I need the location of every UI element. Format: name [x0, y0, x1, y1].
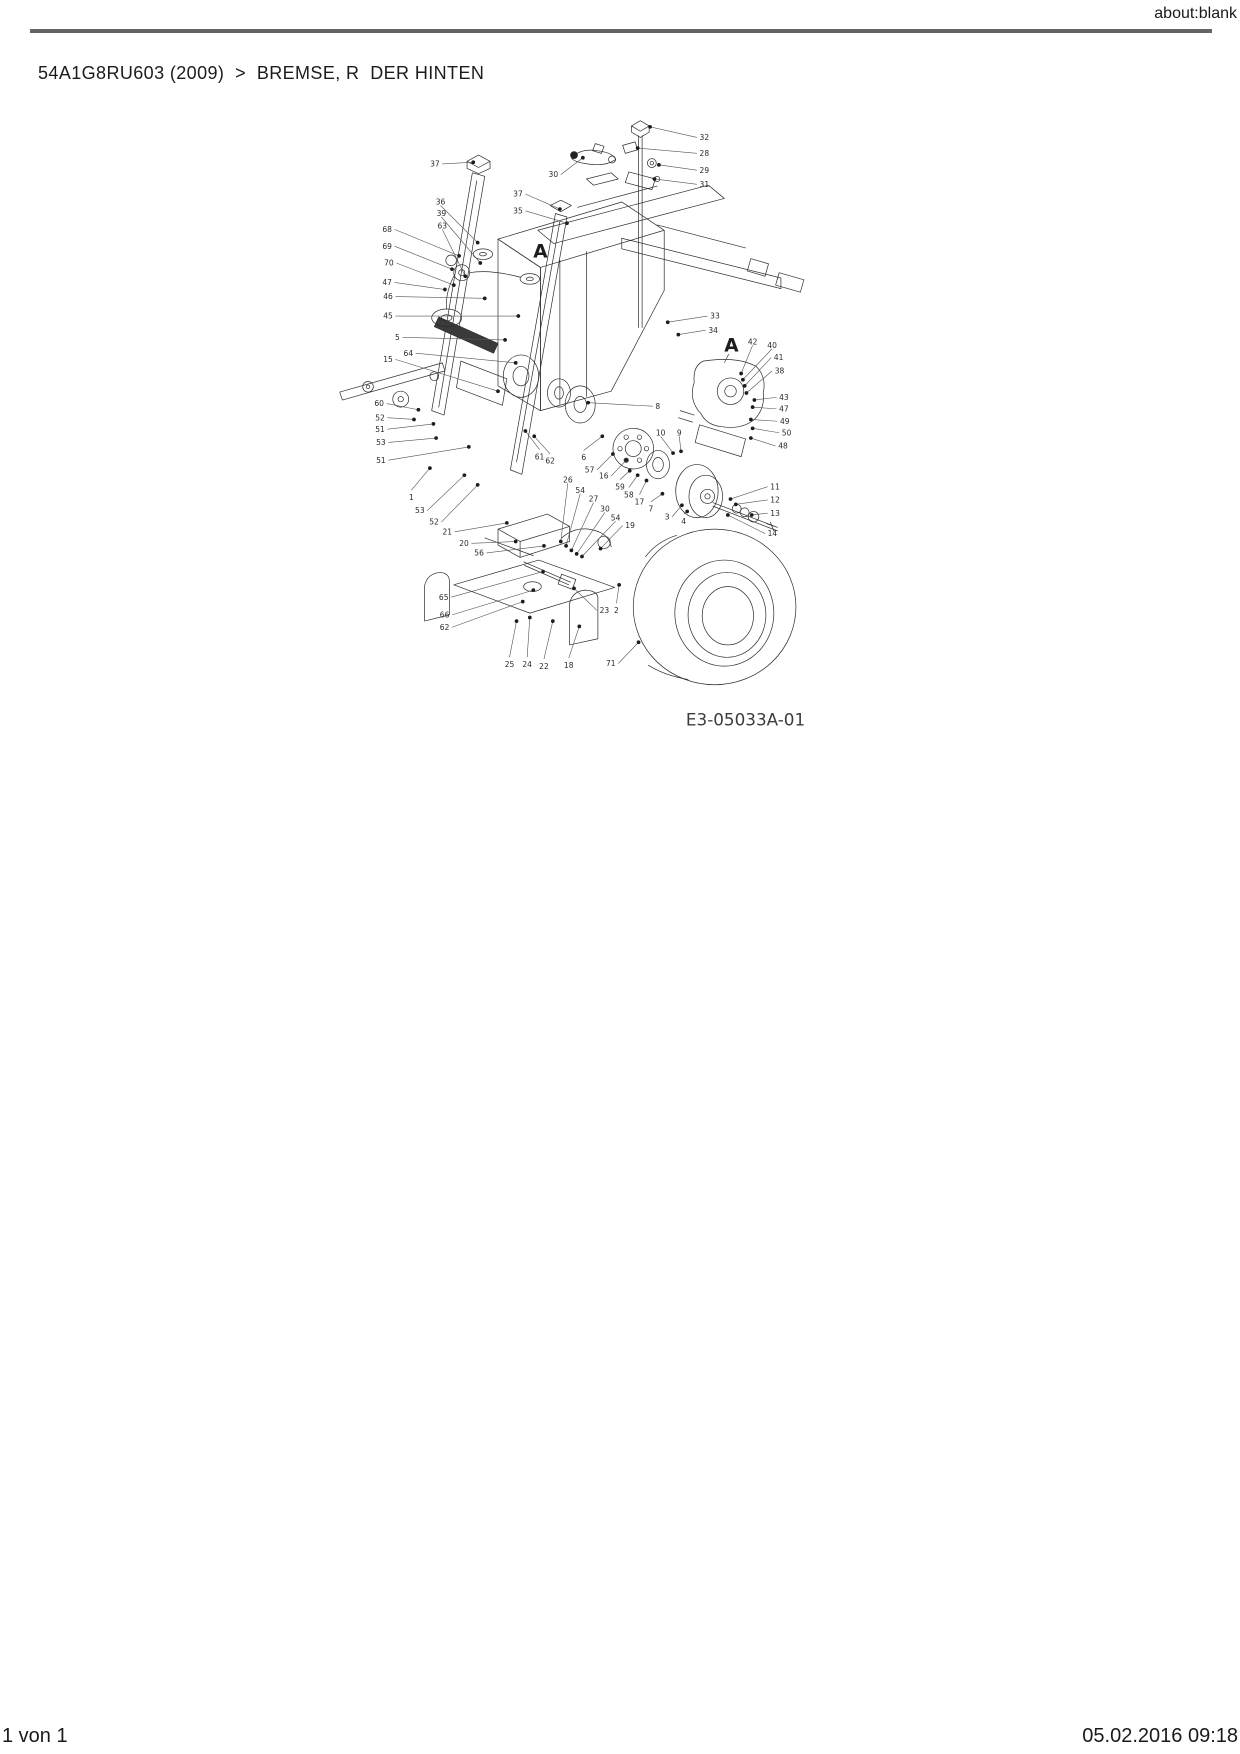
detail-marker-letter: A — [533, 242, 548, 263]
leader-dot — [452, 283, 456, 287]
part-number-label: 69 — [382, 242, 392, 251]
leader-dot — [636, 146, 640, 150]
leader-dot — [645, 479, 649, 483]
part-number-label: 12 — [770, 496, 780, 505]
header-rule — [30, 29, 1212, 33]
part-number-label: 13 — [770, 509, 780, 518]
leader-line — [566, 494, 580, 546]
part-number-label: 11 — [770, 482, 780, 491]
diagram-code: E3-05033A-01 — [686, 709, 805, 729]
part-number-label: 43 — [779, 393, 789, 402]
leader-dot — [496, 389, 500, 393]
leader-line — [395, 297, 484, 299]
leader-dot — [680, 503, 684, 507]
part-number-label: 33 — [710, 312, 720, 321]
leader-line — [651, 494, 662, 502]
leader-line — [741, 345, 752, 373]
part-number-label: 36 — [436, 198, 446, 207]
parts-diagram-container: E3-05033A-01 373639636869704746455641560… — [330, 95, 870, 820]
part-number-label: 29 — [700, 166, 710, 175]
leader-line — [387, 418, 414, 420]
leader-dot — [726, 513, 730, 517]
part-number-label: 62 — [545, 457, 555, 466]
leader-dot — [745, 391, 749, 395]
leader-dot — [514, 540, 518, 544]
part-number-label: 50 — [782, 428, 792, 437]
part-number-label: 14 — [768, 529, 778, 538]
part-number-label: 24 — [522, 660, 532, 669]
part-number-label: 47 — [382, 278, 392, 287]
part-number-label: 47 — [779, 405, 789, 414]
leader-dot — [558, 207, 562, 211]
part-number-label: 23 — [600, 606, 610, 615]
exploded-parts-diagram: E3-05033A-01 373639636869704746455641560… — [330, 95, 870, 820]
leader-dot — [542, 544, 546, 548]
leader-dot — [565, 221, 569, 225]
part-number-label: 18 — [564, 661, 574, 670]
leader-dot — [450, 267, 454, 271]
printed-page: about:blank 54A1G8RU603 (2009) > BREMSE,… — [0, 0, 1240, 1754]
leader-dot — [514, 361, 518, 365]
leader-dot — [559, 540, 563, 544]
part-number-label: 37 — [513, 190, 523, 199]
part-number-label: 52 — [429, 518, 439, 527]
leader-line — [654, 179, 696, 184]
leader-line — [672, 505, 682, 516]
leader-dot — [617, 583, 621, 587]
part-number-label: 71 — [606, 659, 616, 668]
leader-dot — [743, 384, 747, 388]
leader-line — [745, 358, 772, 386]
leader-dot — [457, 254, 461, 258]
leader-line — [751, 419, 778, 421]
leader-dot — [505, 521, 509, 525]
part-number-label: 57 — [585, 466, 595, 475]
part-number-label: 25 — [505, 660, 515, 669]
leader-line — [427, 475, 464, 510]
leader-line — [588, 403, 653, 407]
part-number-label: 54 — [575, 486, 585, 495]
part-number-label: 56 — [474, 549, 484, 558]
leader-line — [668, 316, 708, 322]
part-number-label: 22 — [539, 662, 549, 671]
leader-dot — [749, 436, 753, 440]
part-number-label: 32 — [700, 133, 710, 142]
part-number-label: 40 — [767, 341, 777, 350]
leader-dot — [611, 452, 615, 456]
part-number-label: 28 — [700, 149, 710, 158]
leader-line — [569, 626, 580, 658]
leader-line — [746, 371, 772, 393]
leader-dot — [750, 513, 754, 517]
leader-dot — [476, 241, 480, 245]
leader-line — [455, 523, 507, 532]
leader-line — [754, 397, 776, 400]
leader-dot — [521, 600, 525, 604]
part-number-label: 51 — [375, 425, 385, 434]
leader-line — [395, 229, 460, 256]
leader-dot — [676, 333, 680, 337]
leader-dot — [463, 274, 467, 278]
part-number-label: 27 — [589, 495, 599, 504]
part-number-label: 1 — [409, 493, 414, 502]
leader-dot — [685, 510, 689, 514]
leader-line — [452, 602, 523, 628]
part-number-label: 62 — [440, 623, 450, 632]
leader-dot — [657, 163, 661, 167]
leader-dot — [637, 640, 641, 644]
leader-line — [753, 428, 780, 432]
leader-dot — [476, 483, 480, 487]
leader-line — [597, 454, 613, 470]
leader-dot — [532, 434, 536, 438]
leader-line — [403, 337, 506, 340]
leader-dot — [586, 401, 590, 405]
leader-dot — [531, 588, 535, 592]
leader-dot — [478, 261, 482, 265]
part-number-label: 52 — [375, 413, 385, 422]
leader-dot — [636, 473, 640, 477]
leader-line — [451, 572, 543, 598]
part-number-label: 26 — [563, 475, 573, 484]
part-number-label: 53 — [376, 438, 386, 447]
leader-line — [601, 526, 623, 549]
part-number-label: 5 — [395, 333, 400, 342]
part-number-label: 41 — [774, 353, 784, 362]
leader-line — [618, 642, 638, 663]
leader-dot — [528, 616, 532, 620]
part-number-label: 51 — [376, 456, 386, 465]
leader-line — [650, 127, 697, 138]
leader-dot — [577, 625, 581, 629]
leader-line — [620, 471, 630, 480]
leader-line — [638, 148, 697, 153]
leader-dot — [570, 548, 574, 552]
leader-line — [527, 618, 530, 658]
detail-marker-letter: A — [724, 335, 739, 356]
leader-dot — [653, 177, 657, 181]
leader-dot — [503, 338, 507, 342]
leader-dot — [471, 160, 475, 164]
part-number-label: 35 — [513, 206, 523, 215]
part-number-label: 3 — [665, 512, 670, 521]
part-number-label: 30 — [600, 504, 610, 513]
part-number-label: 53 — [415, 506, 425, 515]
part-number-label: 2 — [614, 606, 619, 615]
leader-line — [544, 621, 553, 659]
leader-line — [388, 447, 468, 460]
leader-dot — [751, 405, 755, 409]
leader-dot — [434, 436, 438, 440]
leader-dot — [551, 619, 555, 623]
part-number-label: 60 — [374, 399, 384, 408]
leader-dot — [516, 314, 520, 318]
leader-dot — [467, 445, 471, 449]
leader-dot — [515, 619, 519, 623]
leader-dot — [648, 125, 652, 129]
part-number-label: 45 — [383, 312, 393, 321]
leader-line — [395, 282, 445, 289]
part-number-label: 6 — [581, 453, 586, 462]
leader-line — [731, 487, 768, 499]
part-number-label: 38 — [775, 367, 785, 376]
leader-dot — [580, 555, 584, 559]
leader-line — [525, 211, 567, 223]
leader-dot — [443, 288, 447, 292]
part-number-label: 68 — [382, 225, 392, 234]
part-number-label: 17 — [635, 497, 645, 506]
leader-dot — [624, 458, 628, 462]
part-number-label: 58 — [624, 490, 634, 499]
leader-line — [411, 468, 430, 490]
leader-line — [584, 436, 603, 450]
leader-dot — [739, 372, 743, 376]
part-number-label: 49 — [780, 417, 790, 426]
part-number-label: 19 — [625, 521, 635, 530]
leader-line — [751, 438, 776, 446]
leader-dot — [575, 552, 579, 556]
part-number-label: 63 — [438, 222, 448, 231]
part-number-label: 65 — [439, 593, 449, 602]
leader-line — [661, 436, 673, 453]
leader-dot — [734, 503, 738, 507]
part-number-label: 9 — [677, 428, 682, 437]
leader-line — [442, 162, 473, 164]
leader-dot — [581, 156, 585, 160]
leader-line — [509, 621, 516, 657]
leader-line — [561, 158, 583, 175]
leader-dot — [483, 296, 487, 300]
leader-line — [387, 424, 433, 429]
leader-line — [659, 165, 697, 170]
leader-dot — [661, 492, 665, 496]
leader-line — [743, 349, 772, 380]
part-number-label: 15 — [383, 355, 393, 364]
leader-line — [525, 194, 559, 209]
page-title: 54A1G8RU603 (2009) > BREMSE, R DER HINTE… — [38, 63, 484, 84]
part-number-label: 4 — [681, 517, 686, 526]
part-number-label: 54 — [611, 513, 621, 522]
part-number-label: 61 — [535, 452, 545, 461]
part-number-label: 8 — [655, 402, 660, 411]
leader-line — [753, 407, 777, 409]
leader-dot — [741, 378, 745, 382]
leader-dot — [753, 398, 757, 402]
leader-dot — [412, 418, 416, 422]
leader-dot — [628, 469, 632, 473]
leader-dot — [564, 544, 568, 548]
leader-dot — [428, 466, 432, 470]
leader-dot — [463, 473, 467, 477]
part-number-label: 34 — [708, 326, 718, 335]
leader-dot — [671, 451, 675, 455]
leader-line — [416, 353, 516, 363]
leader-dot — [541, 570, 545, 574]
leader-line — [639, 480, 646, 494]
leader-line — [571, 503, 593, 551]
leader-dot — [666, 320, 670, 324]
part-number-label: 20 — [459, 539, 469, 548]
part-number-label: 39 — [437, 209, 447, 218]
leader-line — [561, 483, 568, 541]
leader-line — [679, 436, 681, 451]
leader-dot — [599, 547, 603, 551]
part-number-label: 64 — [404, 349, 414, 358]
part-number-label: 70 — [384, 259, 394, 268]
leader-dot — [751, 426, 755, 430]
part-number-label: 10 — [656, 428, 666, 437]
part-number-label: 30 — [549, 170, 559, 179]
part-number-label: 37 — [430, 160, 440, 169]
part-number-label: 7 — [649, 504, 654, 513]
leader-dot — [600, 434, 604, 438]
leader-line — [388, 438, 436, 442]
part-number-label: 16 — [599, 472, 609, 481]
leader-line — [752, 513, 768, 515]
leader-dot — [524, 429, 528, 433]
leader-line — [678, 330, 705, 334]
leader-dot — [572, 586, 576, 590]
part-number-label: 21 — [442, 527, 452, 536]
leader-line — [441, 485, 477, 522]
part-number-label: 66 — [440, 611, 450, 620]
part-number-label: 46 — [383, 292, 393, 301]
leader-dot — [749, 418, 753, 422]
leader-line — [534, 436, 550, 454]
leader-line — [471, 541, 515, 543]
part-number-label: 48 — [778, 442, 788, 451]
leader-line — [616, 585, 619, 604]
print-footer-page-number: 1 von 1 — [2, 1725, 68, 1748]
leader-line — [736, 500, 768, 504]
drawing-linework — [340, 121, 804, 685]
part-number-label: 31 — [700, 180, 710, 189]
leader-line — [629, 475, 638, 487]
leader-dot — [417, 408, 421, 412]
leader-line — [387, 404, 419, 410]
leader-line — [395, 359, 498, 391]
print-footer-datetime: 05.02.2016 09:18 — [1082, 1725, 1238, 1748]
part-label-layer: 3736396368697047464556415605251535115352… — [374, 125, 791, 671]
leader-line — [486, 546, 543, 553]
leader-dot — [432, 422, 436, 426]
part-number-label: 42 — [748, 337, 758, 346]
leader-dot — [679, 449, 683, 453]
leader-dot — [729, 497, 733, 501]
print-header-source: about:blank — [1154, 5, 1237, 23]
